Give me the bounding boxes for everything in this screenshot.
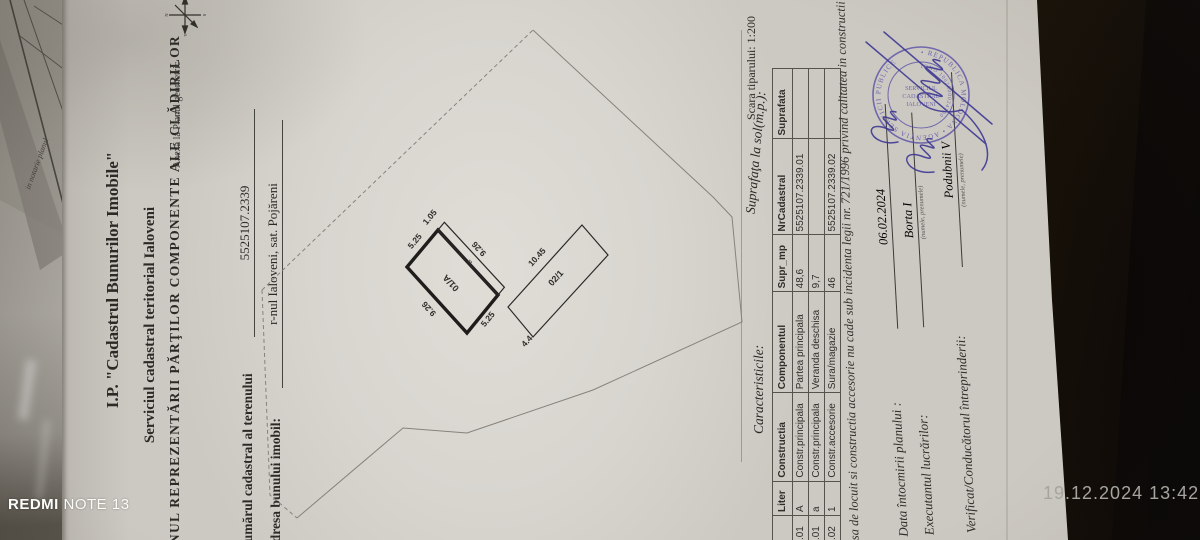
characteristics-table: Liter Constructia Componentul Supr_mp Nr… (772, 68, 841, 540)
table-row: 5525107.2339.01 a Constr.principala Vera… (809, 69, 825, 540)
cell-supr: 48,6 (793, 235, 809, 292)
cell-nrcad: 5525107.2339.01 (793, 139, 809, 235)
handwritten-signatures (840, 0, 1010, 260)
col-constructia: Constructia (773, 393, 793, 481)
cell-liter: 1 (825, 481, 841, 515)
characteristics-caption: Caracteristicile: (751, 345, 767, 434)
col-liter: Liter (773, 481, 793, 515)
cell-nr: 5525107.2339.02 (825, 515, 841, 540)
date-label: Data întocmirii planului : (888, 402, 911, 537)
cell-nr: 5525107.2339.01 (793, 515, 809, 540)
dim-b2-long: 10.45 (526, 246, 548, 269)
brand-rest: NOTE 13 (59, 496, 130, 513)
cell-constructia: Constr.principala (793, 393, 809, 481)
executor-signature (907, 139, 934, 173)
org-title-line1: I.P. "Cadastrul Bunurilor Imobile" (103, 20, 123, 540)
col-supr-mp: Supr_mp (773, 235, 793, 292)
cell-supr: 9,7 (809, 235, 825, 292)
dim-b1-top-small: 1.05 (421, 207, 439, 226)
compass-v: V (183, 33, 188, 37)
dim-b1-right: 9.26 (469, 239, 488, 258)
cell-liter: a (809, 481, 825, 515)
cell-constructia: Constr.accesorie (825, 393, 841, 481)
photo-timestamp: 19.12.2024 13:42 (1043, 483, 1199, 504)
cell-componentul: Sura/magazie (825, 292, 841, 393)
building-021-label: 02/1 (546, 268, 565, 288)
cell-constructia: Constr.principala (809, 393, 825, 481)
parcel-plan-drawing: 5.25 1.05 9.26 5.25 9.26 a 10.45 4.4 01/… (250, 0, 750, 540)
cell-nr: 5525107.2339.01 (809, 515, 825, 540)
verifier-label: Verificat/Conducătorul întreprinderii: (953, 335, 980, 533)
parcel-boundary-solid (297, 30, 742, 518)
table-row: 5525107.2339.01 A Constr.principala Part… (793, 69, 809, 540)
signature-tail (962, 110, 987, 170)
executor-label: Executantul lucrărilor: (915, 414, 938, 536)
photo-frame: in notarie planul I.P. "Cadastrul Bunuri… (0, 0, 1200, 540)
signature-slash-1 (866, 42, 986, 144)
camera-brand-watermark: REDMI NOTE 13 (8, 496, 130, 513)
brand-bold: REDMI (8, 496, 59, 513)
cell-nrcad (809, 139, 825, 235)
dim-b1-left: 9.26 (419, 299, 438, 318)
org-title-line2: Serviciul cadastral teritorial Ialoveni (142, 65, 159, 540)
cell-componentul: Partea principala (793, 292, 809, 393)
cadastral-document: I.P. "Cadastrul Bunurilor Imobile" Servi… (0, 0, 1200, 540)
col-componentul: Componentul (773, 292, 793, 393)
compass-s: S (202, 13, 207, 16)
dim-b1-bottom: 5.25 (479, 309, 497, 328)
compass-n: N (164, 13, 169, 17)
annex-note: Anexă la Planul geometric (172, 62, 183, 168)
cell-suprafata (809, 69, 825, 140)
col-suprafata: Suprafata (773, 69, 793, 140)
parcel-boundary-dashed-left (262, 290, 297, 518)
cell-suprafata (793, 69, 809, 140)
building-01A-label: 01/A (440, 272, 461, 293)
cell-supr: 46 (825, 235, 841, 292)
col-nrcadastral: NrCadastral (773, 139, 793, 235)
col-nr-cut (773, 515, 793, 540)
parcel-boundary-dashed-right (262, 30, 533, 290)
compass-icon: N S E V (163, 0, 207, 37)
cell-liter: A (793, 481, 809, 515)
cell-componentul: Veranda deschisa (809, 292, 825, 393)
table-header-row: Liter Constructia Componentul Supr_mp Nr… (773, 69, 793, 540)
date-line-signature (871, 111, 898, 142)
